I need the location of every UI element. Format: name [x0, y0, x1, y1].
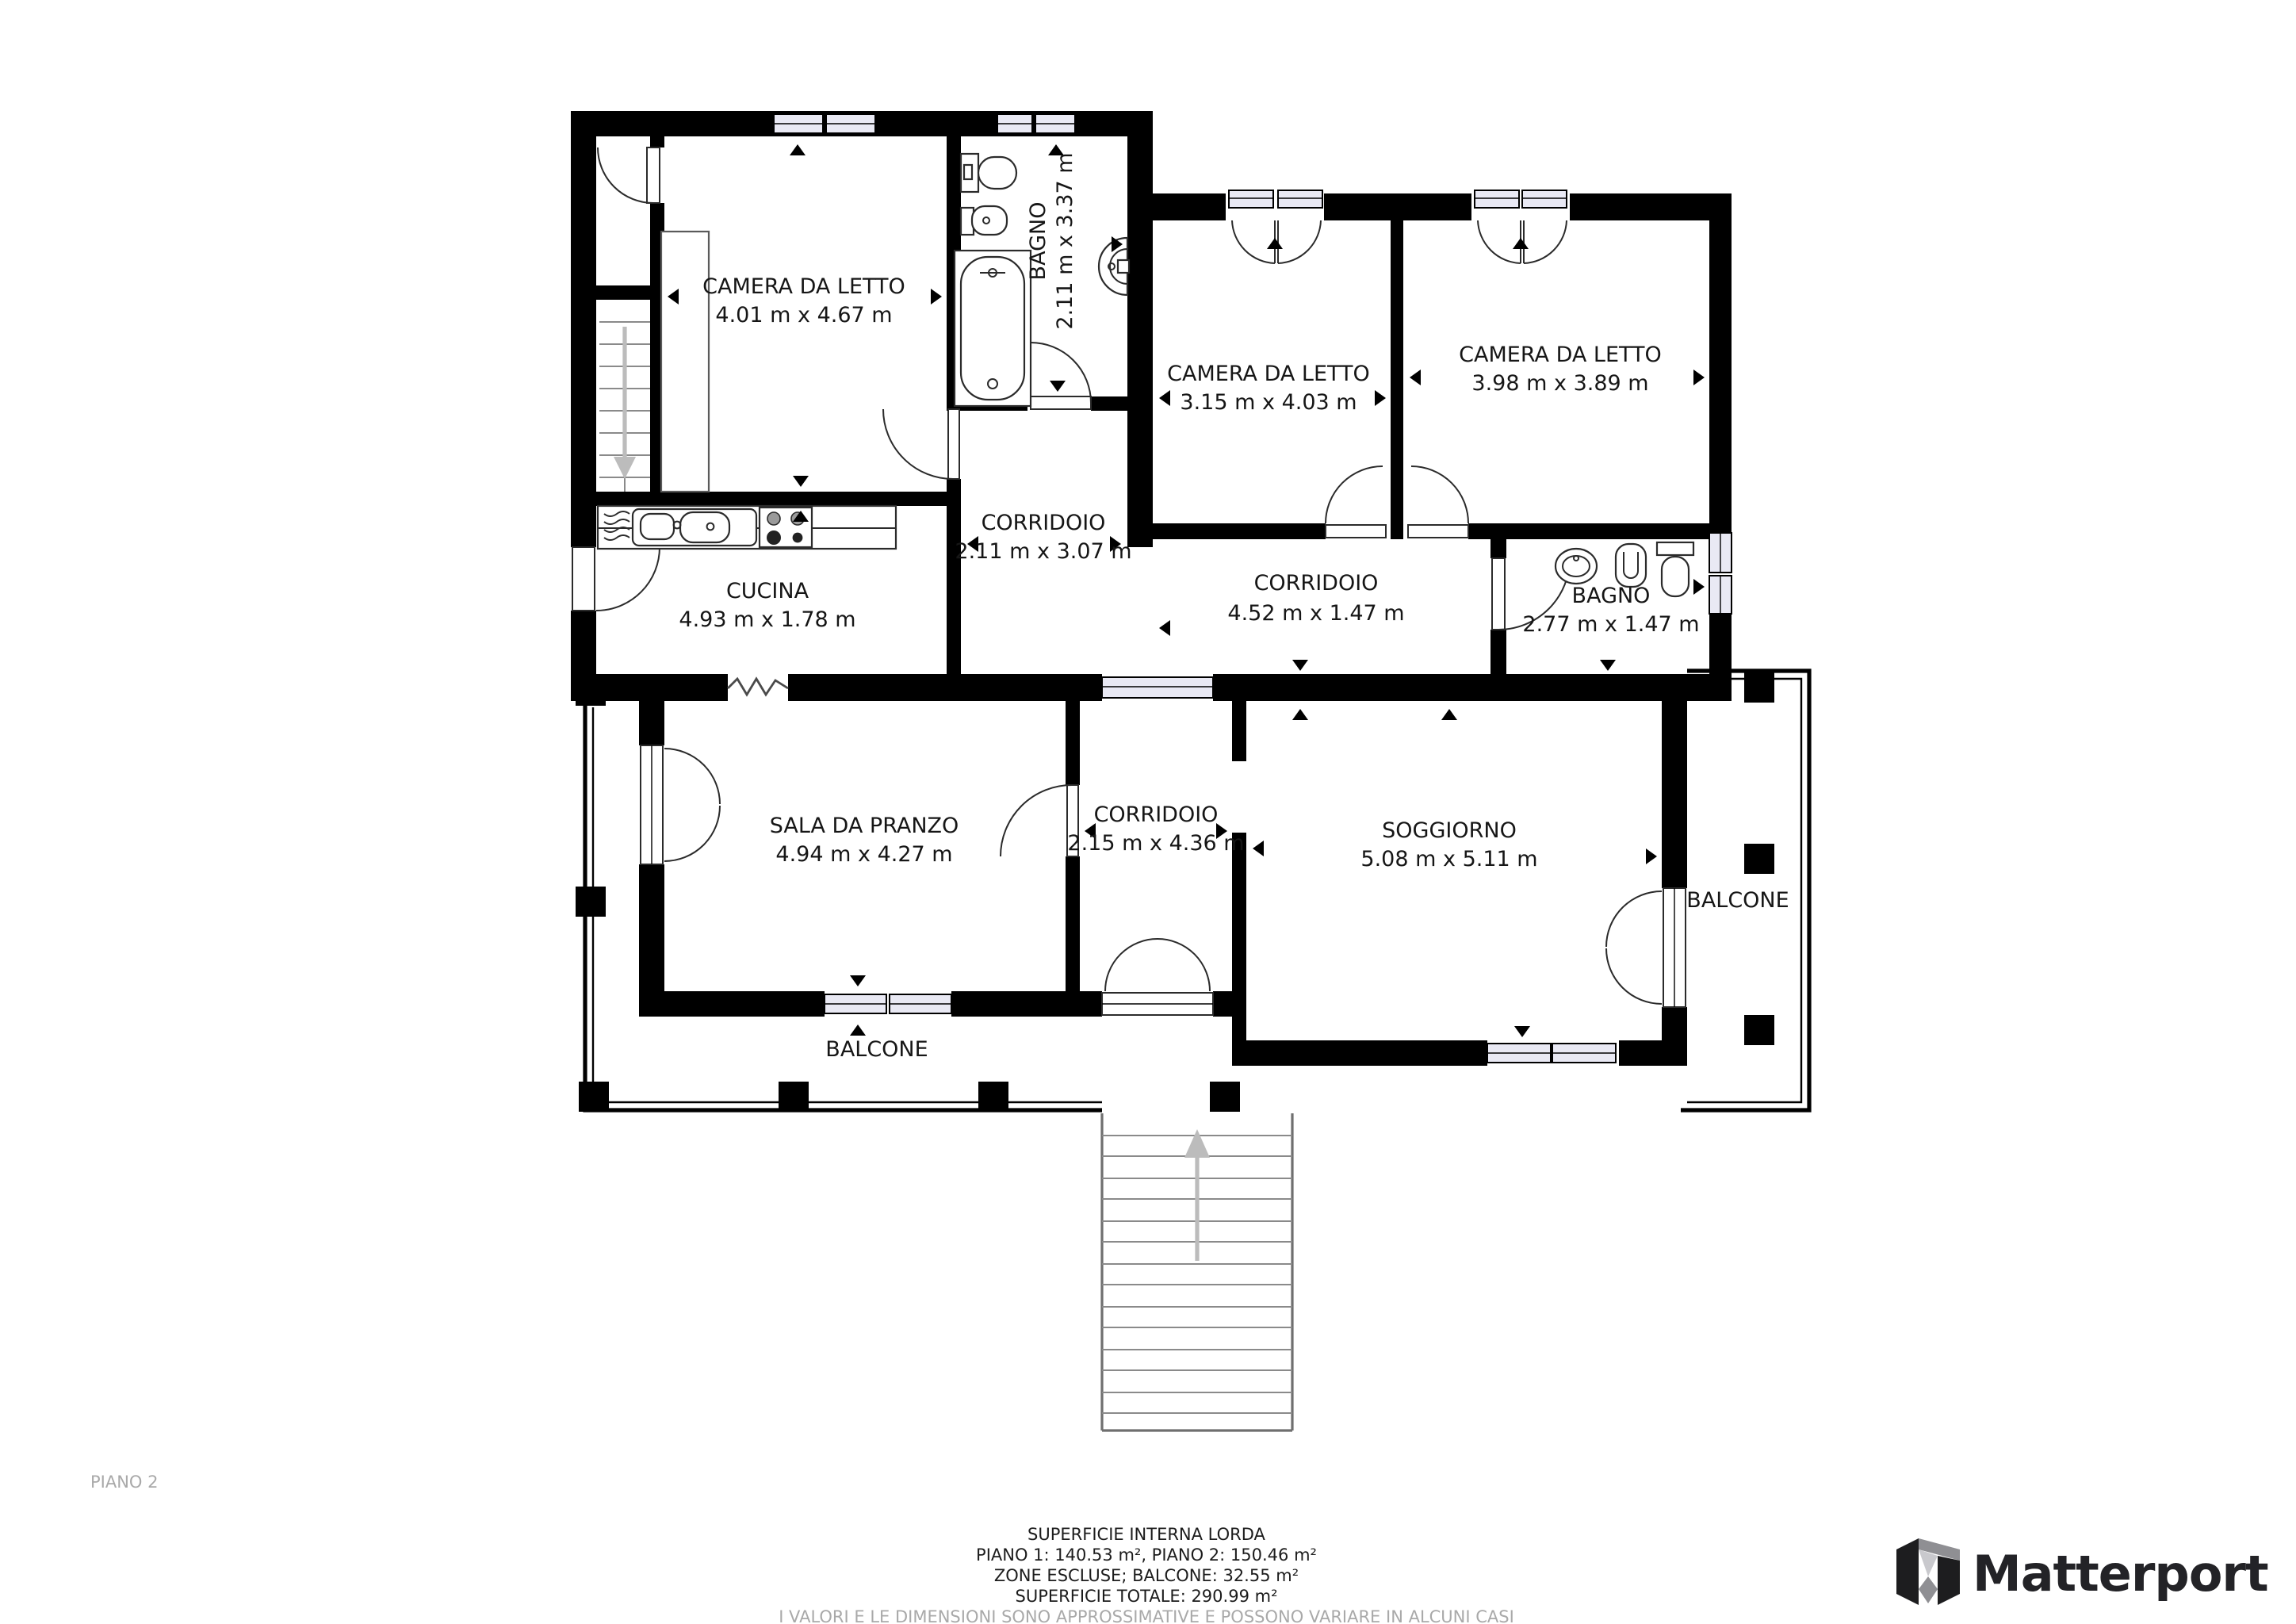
room-label-balcone-bottom: BALCONE: [825, 1037, 928, 1062]
door-camera1: [883, 409, 959, 479]
door-camera3: [1408, 466, 1468, 538]
room-label-sala-dims: 4.94 m x 4.27 m: [775, 842, 952, 867]
floor-plan: CAMERA DA LETTO 4.01 m x 4.67 m BAGNO 2.…: [0, 0, 2296, 1624]
room-label-sala-name: SALA DA PRANZO: [770, 814, 959, 838]
french-door-soggiorno-balcone: [1606, 888, 1686, 1007]
room-label-camera3-name: CAMERA DA LETTO: [1459, 343, 1662, 367]
french-door-sala-balcone: [641, 745, 720, 864]
door-cucina: [572, 547, 660, 611]
floor-label: PIANO 2: [90, 1473, 159, 1492]
door-bagno1: [1031, 343, 1091, 409]
room-label-camera1-dims: 4.01 m x 4.67 m: [715, 303, 892, 327]
room-label-bagno1: BAGNO 2.11 m x 3.37 m: [1026, 152, 1077, 329]
footer-piani: PIANO 1: 140.53 m², PIANO 2: 150.46 m²: [976, 1545, 1317, 1565]
footer-zone-escluse: ZONE ESCLUSE; BALCONE: 32.55 m²: [994, 1566, 1299, 1585]
room-label-cucina-dims: 4.93 m x 1.78 m: [679, 607, 855, 632]
kitchen-counter: [598, 506, 896, 549]
room-label-corridoio1-name: CORRIDOIO: [982, 511, 1106, 535]
room-label-soggiorno-dims: 5.08 m x 5.11 m: [1360, 847, 1537, 871]
room-label-bagno2-name: BAGNO: [1572, 584, 1651, 608]
room-label-camera1-name: CAMERA DA LETTO: [702, 274, 905, 299]
room-label-corridoio3-name: CORRIDOIO: [1094, 802, 1219, 827]
door-vestibolo: [598, 147, 660, 203]
wall-break-zigzag: [728, 679, 788, 695]
room-label-soggiorno-name: SOGGIORNO: [1382, 818, 1517, 843]
room-label-bagno1-dims: 2.11 m x 3.37 m: [1053, 152, 1077, 329]
matterport-logo: Matterport: [1896, 1538, 2268, 1605]
window-camera3-bay: [1475, 190, 1567, 208]
window-bagno1-top: [997, 114, 1075, 133]
window-camera2-bay: [1229, 190, 1322, 208]
room-label-corridoio2-name: CORRIDOIO: [1254, 571, 1379, 596]
room-label-camera2-dims: 3.15 m x 4.03 m: [1180, 390, 1357, 415]
door-sala-corridoio: [1001, 785, 1078, 856]
stairs-down-arrow-icon: [614, 327, 636, 479]
room-label-camera3-dims: 3.98 m x 3.89 m: [1471, 371, 1648, 396]
footer-summary: SUPERFICIE INTERNA LORDA PIANO 1: 140.53…: [779, 1525, 1514, 1624]
footer-disclaimer: I VALORI E LE DIMENSIONI SONO APPROSSIMA…: [779, 1607, 1514, 1624]
window-bagno2-right: [1709, 533, 1732, 614]
footer-totale: SUPERFICIE TOTALE: 290.99 m²: [1016, 1587, 1278, 1606]
room-label-cucina-name: CUCINA: [726, 579, 809, 603]
footer-superficie-title: SUPERFICIE INTERNA LORDA: [1027, 1525, 1266, 1544]
room-label-bagno1-name: BAGNO: [1026, 202, 1050, 281]
matterport-logo-text: Matterport: [1973, 1545, 2268, 1603]
stairs-exterior: [1102, 1113, 1292, 1431]
window-sala-bottom: [825, 994, 951, 1013]
door-camera2: [1326, 466, 1386, 538]
room-label-corridoio3-dims: 2.15 m x 4.36 m: [1067, 831, 1244, 856]
room-label-bagno2-dims: 2.77 m x 1.47 m: [1522, 612, 1699, 637]
room-label-camera2-name: CAMERA DA LETTO: [1167, 362, 1370, 386]
window-corridoio3-top: [1102, 677, 1213, 698]
stairs-interior: [599, 322, 650, 492]
wardrobe-camera1: [661, 232, 709, 492]
room-label-corridoio2-dims: 4.52 m x 1.47 m: [1227, 601, 1404, 626]
matterport-logo-icon: [1896, 1538, 1960, 1605]
room-label-corridoio1-dims: 2.11 m x 3.07 m: [955, 539, 1131, 564]
window-soggiorno-bottom: [1487, 1044, 1616, 1063]
room-label-balcone-right: BALCONE: [1686, 888, 1789, 913]
french-door-corridoio3-balcone: [1102, 939, 1213, 1015]
